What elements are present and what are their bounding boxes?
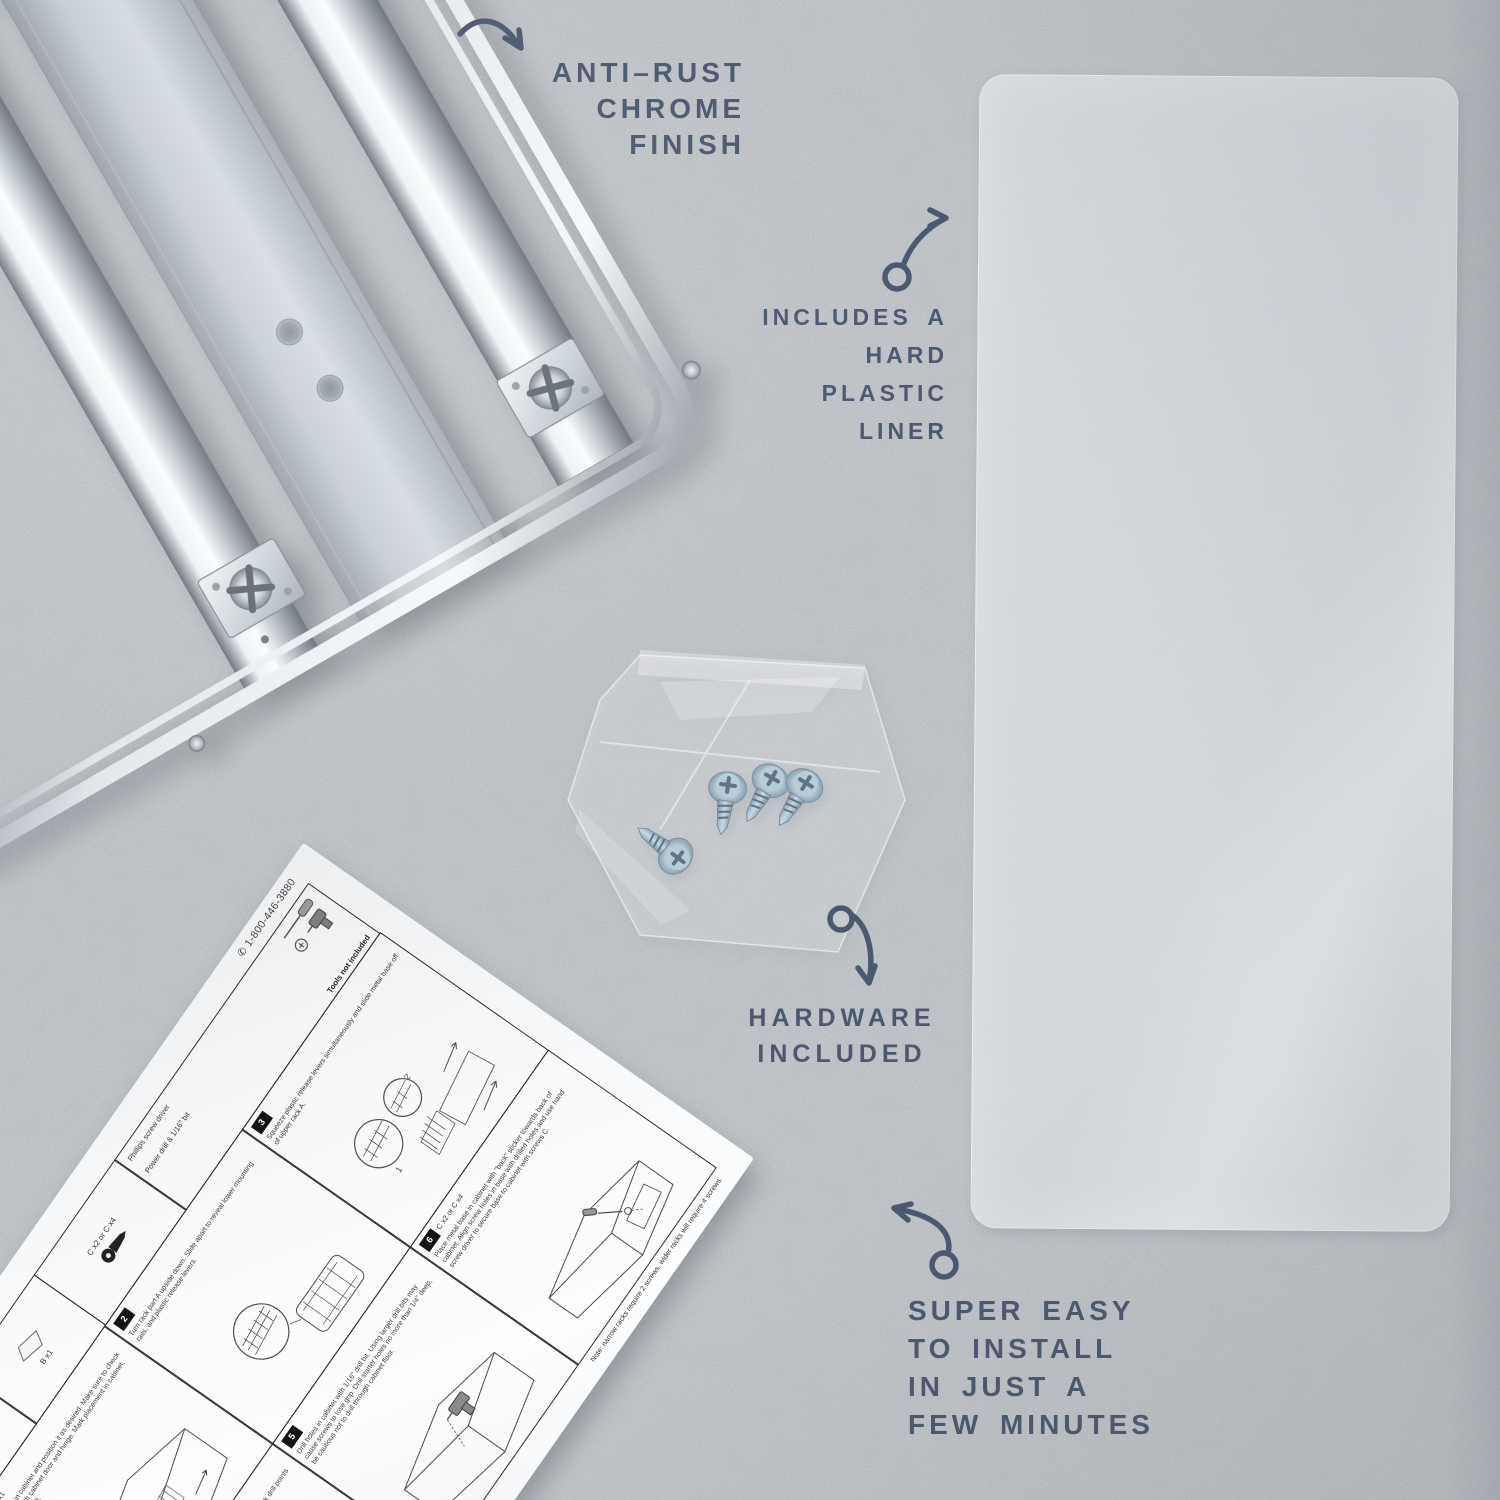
- annotation-plastic-liner: INCLUDES A HARD PLASTIC LINER: [762, 298, 948, 450]
- product-photo: ✆ 1-800-446-3880 A x1 B x1 C x2 or C x4: [0, 0, 1500, 1500]
- hardware-bag: [540, 620, 940, 980]
- plastic-liner: [970, 74, 1458, 1232]
- phone-icon: ✆: [235, 945, 250, 959]
- svg-text:1: 1: [394, 1165, 405, 1175]
- step-illustration: [373, 1328, 561, 1500]
- annotation-chrome-finish: ANTI–RUST CHROME FINISH: [552, 55, 745, 163]
- annotation-easy-install: SUPER EASY TO INSTALL IN JUST A FEW MINU…: [908, 1292, 1154, 1444]
- annotation-hardware: HARDWARE INCLUDED: [726, 1000, 958, 1072]
